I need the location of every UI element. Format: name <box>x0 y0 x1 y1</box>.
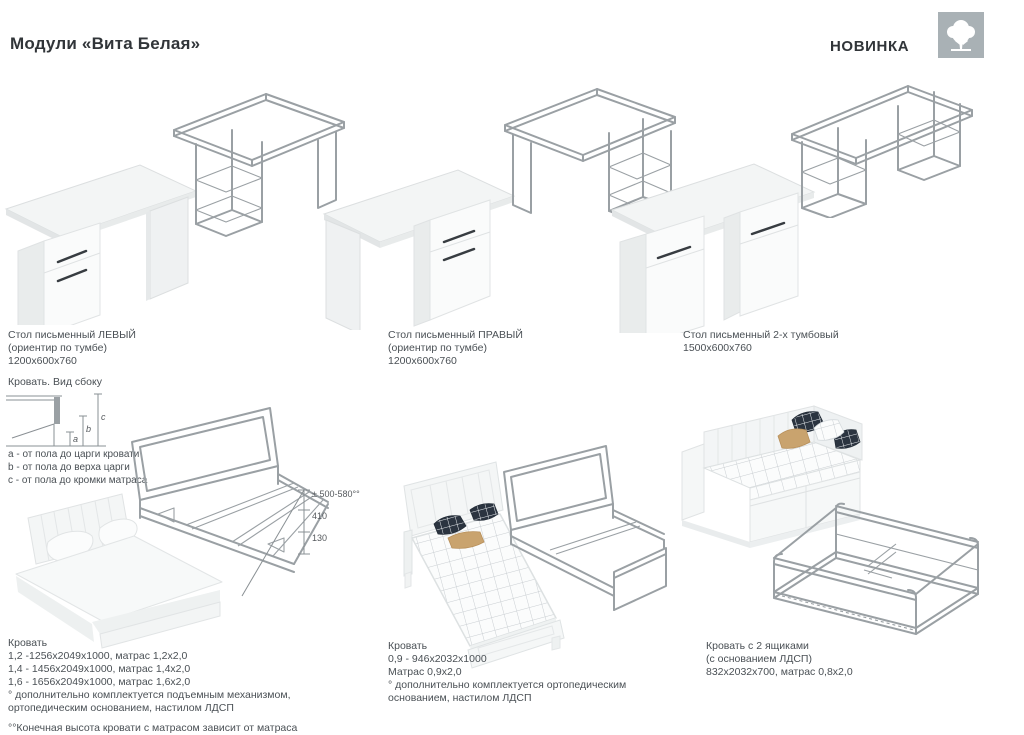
text-line: 1200x600x760 <box>388 355 523 368</box>
text-line: Стол письменный ПРАВЫЙ <box>388 329 523 342</box>
bed-single-footnote: ° дополнительно комплектуется ортопедиче… <box>388 679 668 705</box>
bed-double-sizes: 1,2 -1256x2049x1000, матрас 1,2x2,01,4 -… <box>8 650 308 689</box>
page-title: Модули «Вита Белая» <box>10 34 200 54</box>
text-line: (ориентир по тумбе) <box>8 342 136 355</box>
desk-left-caption: Стол письменный ЛЕВЫЙ(ориентир по тумбе)… <box>8 329 136 368</box>
text-line: ортопедическим основанием, настилом ЛДСП <box>8 702 308 715</box>
text-line: 832x2032x700, матрас 0,8x2,0 <box>706 666 926 679</box>
text-line: 1200x600x760 <box>8 355 136 368</box>
desk-right-caption: Стол письменный ПРАВЫЙ(ориентир по тумбе… <box>388 329 523 368</box>
text-line: 1,2 -1256x2049x1000, матрас 1,2x2,0 <box>8 650 308 663</box>
bed-drawers-sizes: (с основанием ЛДСП)832x2032x700, матрас … <box>706 653 926 679</box>
bed-single-wireframe <box>496 430 681 630</box>
text-line: 1500x600x760 <box>683 342 839 355</box>
new-badge: НОВИНКА <box>830 38 909 55</box>
text-line: 1,4 - 1456x2049x1000, матрас 1,4x2,0 <box>8 663 308 676</box>
text-line: (с основанием ЛДСП) <box>706 653 926 666</box>
bed-double-footnote2: °°Конечная высота кровати с матрасом зав… <box>8 722 308 735</box>
text-line: Стол письменный 2-х тумбовый <box>683 329 839 342</box>
dim-label-130: 130 <box>312 533 327 543</box>
text-line: (ориентир по тумбе) <box>388 342 523 355</box>
svg-text:c: c <box>101 412 106 422</box>
text-line: ° дополнительно комплектуется ортопедиче… <box>388 679 668 692</box>
catalog-page: { "header": { "title": "Модули «Вита Бел… <box>0 0 1024 714</box>
bed-double-dimension-lines <box>240 488 310 600</box>
text-line: Стол письменный ЛЕВЫЙ <box>8 329 136 342</box>
text-line: 0,9 - 946x2032x1000 <box>388 653 668 666</box>
dim-label-mattress-height: ± 500-580°° <box>312 489 360 499</box>
bed-single-title: Кровать <box>388 640 668 653</box>
bed-drawers-title: Кровать с 2 ящиками <box>706 640 926 653</box>
desk-double-wireframe <box>786 58 982 218</box>
side-view-diagram: a b c <box>4 390 114 452</box>
bed-drawers-caption: Кровать с 2 ящиками (с основанием ЛДСП)8… <box>706 640 926 679</box>
dim-label-410: 410 <box>312 511 327 521</box>
bed-single-sizes: 0,9 - 946x2032x1000Матрас 0,9x2,0 <box>388 653 668 679</box>
svg-text:b: b <box>86 424 91 434</box>
text-line: Матрас 0,9x2,0 <box>388 666 668 679</box>
bed-drawers-wireframe <box>768 494 990 652</box>
bed-double-title: Кровать <box>8 637 308 650</box>
bed-double-footnote: ° дополнительно комплектуется подъемным … <box>8 689 308 715</box>
desk-double-caption: Стол письменный 2-х тумбовый1500x600x760 <box>683 329 839 355</box>
text-line: ° дополнительно комплектуется подъемным … <box>8 689 308 702</box>
bed-double-caption: Кровать 1,2 -1256x2049x1000, матрас 1,2x… <box>8 637 308 735</box>
tree-logo-icon <box>938 12 984 58</box>
side-view-title: Кровать. Вид сбоку <box>8 376 102 389</box>
bed-single-caption: Кровать 0,9 - 946x2032x1000Матрас 0,9x2,… <box>388 640 668 705</box>
text-line: основанием, настилом ЛДСП <box>388 692 668 705</box>
text-line: 1,6 - 1656x2049x1000, матрас 1,6x2,0 <box>8 676 308 689</box>
svg-text:a: a <box>73 434 78 444</box>
